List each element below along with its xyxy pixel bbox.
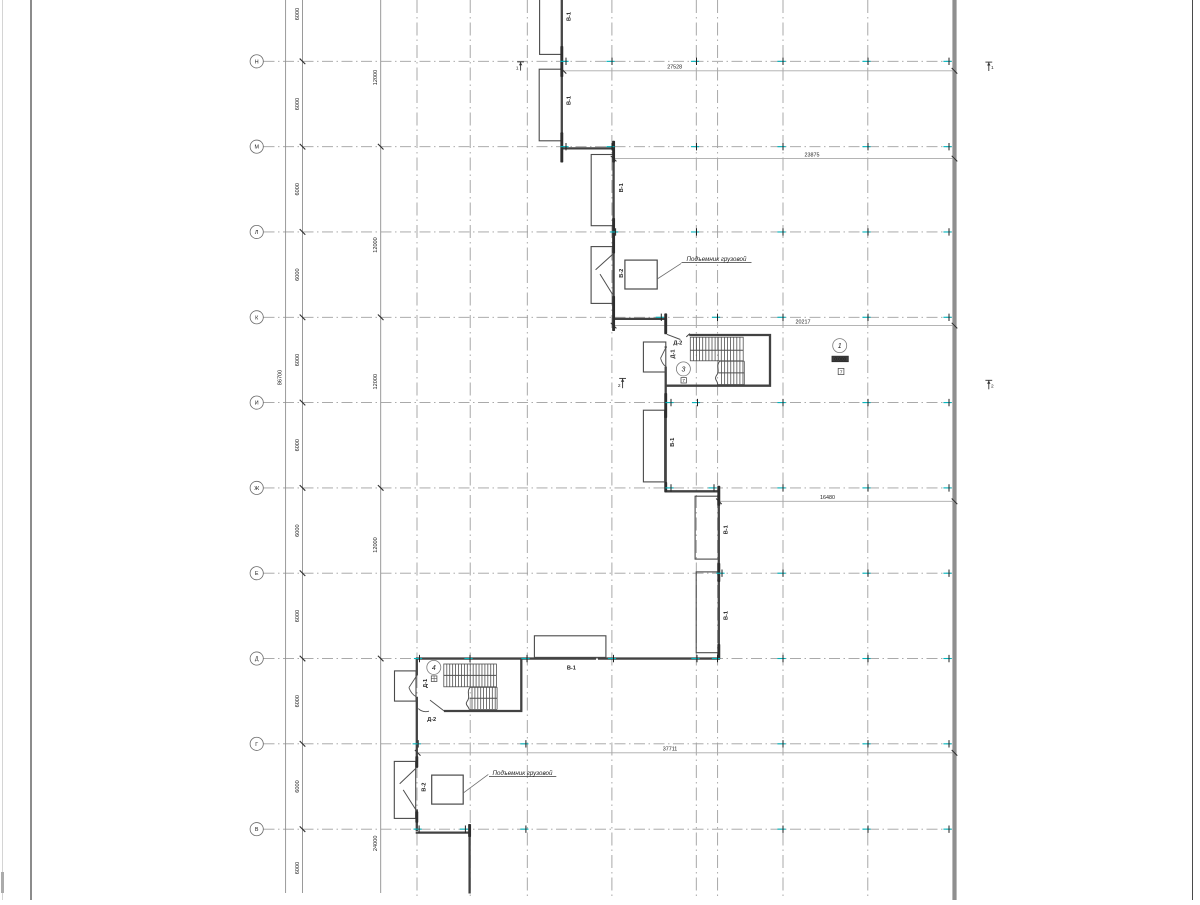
svg-text:23875: 23875 [805,152,820,158]
svg-text:М: М [254,145,259,151]
svg-text:1: 1 [838,343,842,350]
svg-text:37711: 37711 [663,747,678,753]
svg-text:1: 1 [991,65,994,71]
svg-text:4: 4 [432,665,436,672]
svg-text:Д-2: Д-2 [673,341,682,347]
svg-text:12000: 12000 [373,537,379,553]
svg-text:0.000: 0.000 [834,357,846,362]
svg-text:6000: 6000 [295,610,301,622]
svg-text:В-1: В-1 [567,665,576,671]
svg-text:6000: 6000 [295,780,301,792]
svg-text:6000: 6000 [295,524,301,536]
svg-text:6000: 6000 [295,439,301,451]
svg-text:6000: 6000 [295,862,301,874]
svg-text:6000: 6000 [295,183,301,195]
svg-text:Д-2: Д-2 [427,717,436,723]
svg-text:2: 2 [991,383,994,389]
svg-text:Е: Е [255,571,259,577]
svg-text:В-2: В-2 [422,783,428,792]
svg-text:В-1: В-1 [619,183,625,192]
svg-text:6000: 6000 [295,98,301,110]
svg-text:В-1: В-1 [723,525,729,534]
svg-text:7: 7 [840,370,843,375]
svg-text:2: 2 [618,383,621,389]
svg-text:В: В [255,827,259,833]
svg-text:1: 1 [516,66,519,72]
svg-text:В-1: В-1 [567,12,573,21]
svg-text:Ж: Ж [254,486,259,492]
svg-text:27528: 27528 [667,65,682,71]
svg-text:И: И [255,401,259,407]
svg-text:7: 7 [682,378,685,383]
svg-text:24000: 24000 [373,836,379,852]
svg-text:Подъемник грузовой: Подъемник грузовой [687,256,747,263]
svg-text:20217: 20217 [796,319,811,325]
svg-text:12000: 12000 [373,237,379,253]
svg-text:6000: 6000 [295,695,301,707]
svg-text:В-1: В-1 [567,96,573,105]
svg-text:6000: 6000 [295,268,301,280]
svg-text:Д: Д [255,657,259,663]
svg-text:12000: 12000 [373,374,379,390]
svg-text:Д-1: Д-1 [423,679,429,688]
svg-text:Г: Г [255,742,258,748]
svg-text:Л: Л [255,230,259,236]
svg-text:6000: 6000 [295,354,301,366]
svg-text:86700: 86700 [277,370,283,386]
svg-text:Н: Н [255,59,259,65]
svg-text:Подъемник грузовой: Подъемник грузовой [493,770,553,777]
svg-text:В-1: В-1 [670,438,676,447]
svg-text:Д-1: Д-1 [671,350,677,359]
svg-text:В-1: В-1 [723,611,729,620]
svg-text:16480: 16480 [820,495,835,501]
svg-text:3: 3 [681,366,685,373]
svg-text:В-2: В-2 [619,269,625,278]
svg-text:12000: 12000 [373,70,379,86]
svg-text:6000: 6000 [295,8,301,20]
